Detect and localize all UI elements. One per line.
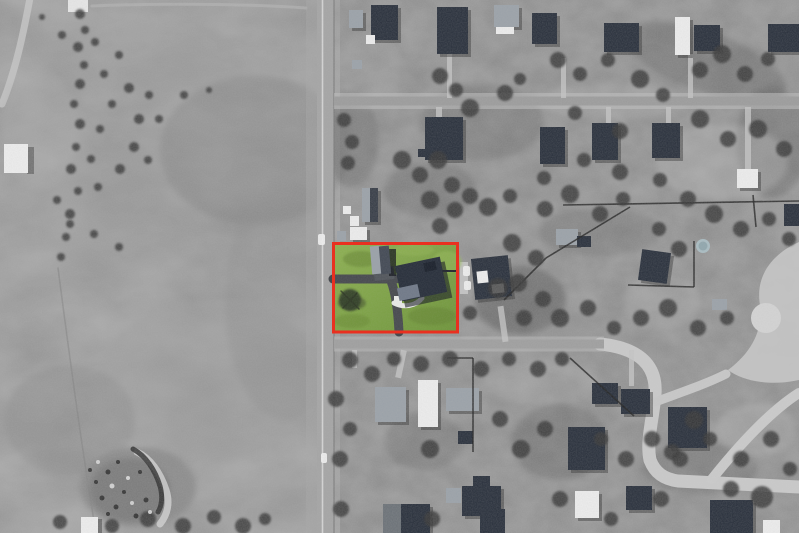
aerial-map-view [0,0,799,533]
aerial-map-canvas[interactable] [0,0,799,533]
parcel-grain [333,243,458,332]
